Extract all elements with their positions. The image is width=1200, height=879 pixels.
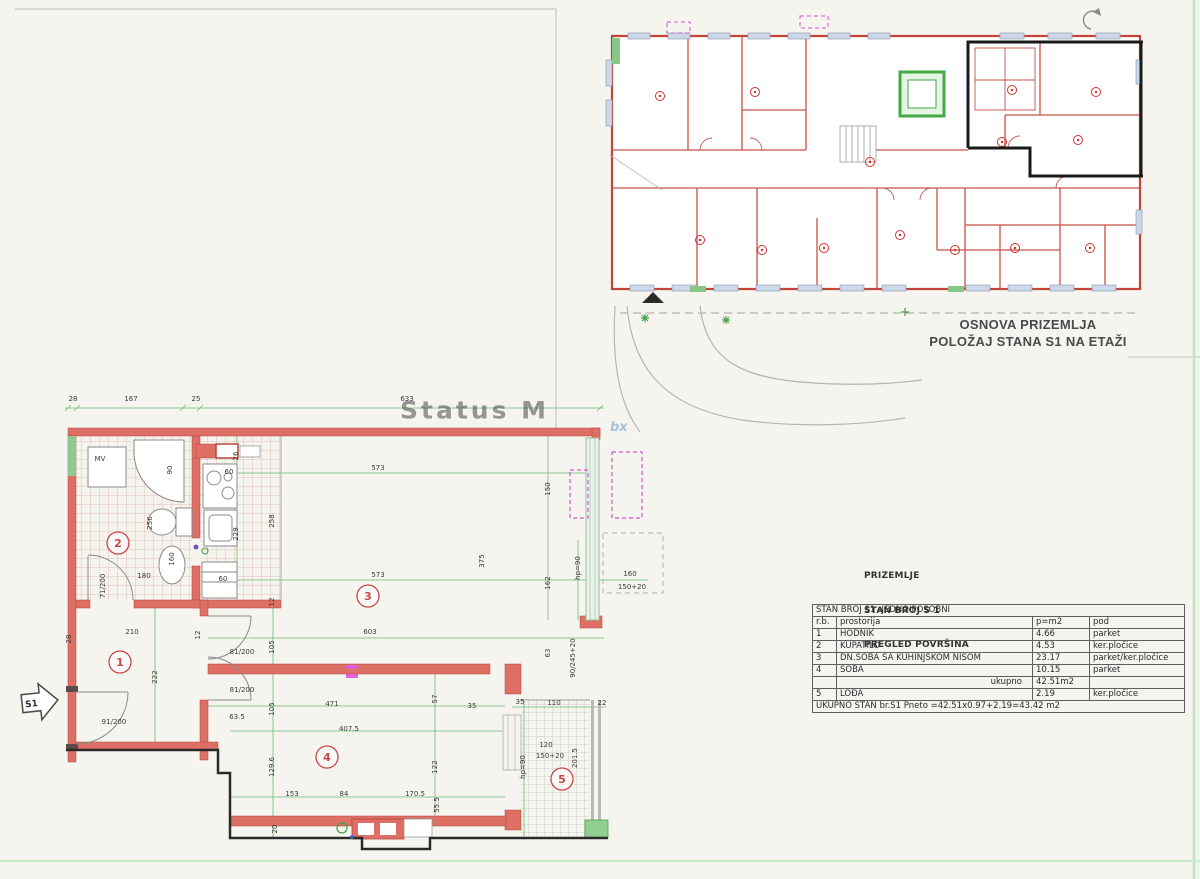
table-row: ukupno42.51m2 bbox=[813, 677, 1185, 689]
table-cell: 2 bbox=[813, 641, 837, 653]
summary-heading-line1: PRIZEMLJE bbox=[864, 571, 969, 583]
dimension-label: 60 bbox=[225, 468, 234, 476]
room-number: 1 bbox=[116, 656, 124, 669]
dimension-label: hp=90 bbox=[519, 755, 527, 779]
dimension-label: 91/200 bbox=[102, 718, 127, 726]
dimension-label: 153 bbox=[285, 790, 298, 798]
dimension-label: 28 bbox=[65, 635, 73, 644]
dimension-label: 129.6 bbox=[268, 756, 276, 777]
entrance-label: S1 bbox=[25, 699, 39, 710]
dimension-label: 256 bbox=[146, 516, 154, 530]
washing-machine bbox=[88, 447, 126, 487]
dimension-label: 573 bbox=[371, 464, 384, 472]
dimension-label: 150+20 bbox=[536, 752, 564, 760]
table-row: STAN BROJ S1 -JEDNOIPOSOBNI bbox=[813, 605, 1185, 617]
table-cell: UKUPNO STAN br.S1 Pneto =42.51x0.97+2.19… bbox=[813, 701, 1185, 713]
table-cell: 3 bbox=[813, 653, 837, 665]
dimension-label: 229 bbox=[232, 527, 240, 540]
dimension-label: 407.5 bbox=[339, 725, 359, 733]
table-cell: ker.pločice bbox=[1090, 689, 1185, 701]
dimension-label: 162 bbox=[544, 576, 552, 589]
dimension-label: 573 bbox=[371, 571, 384, 579]
table-cell: ker.pločice bbox=[1090, 641, 1185, 653]
table-cell: STAN BROJ S1 -JEDNOIPOSOBNI bbox=[813, 605, 1185, 617]
dimension-label: 25 bbox=[192, 395, 201, 403]
table-cell: HODNIK bbox=[837, 629, 1033, 641]
table-cell: 5 bbox=[813, 689, 837, 701]
table-cell: DN.SOBA SA KUHINJSKOM NIŠOM bbox=[837, 653, 1033, 665]
overview-title-line1: OSNOVA PRIZEMLJA bbox=[897, 316, 1159, 333]
table-cell bbox=[813, 677, 837, 689]
room-number: 5 bbox=[558, 773, 566, 786]
room-number: 2 bbox=[114, 537, 122, 550]
room-number: 4 bbox=[323, 751, 331, 764]
table-cell: 10.15 bbox=[1033, 665, 1090, 677]
dimension-label: 120 bbox=[539, 741, 552, 749]
dimension-label: 28 bbox=[69, 395, 78, 403]
dimension-label: 81/200 bbox=[230, 686, 255, 694]
overview-title: OSNOVA PRIZEMLJA POLOŽAJ STANA S1 NA ETA… bbox=[897, 316, 1159, 350]
table-cell: 1 bbox=[813, 629, 837, 641]
dimension-label: 55.5 bbox=[433, 797, 441, 813]
dimension-label: 84 bbox=[340, 790, 349, 798]
table-cell: LOĐA bbox=[837, 689, 1033, 701]
dimension-label: hp=90 bbox=[574, 556, 582, 580]
dimension-label: 375 bbox=[478, 554, 486, 567]
dimension-label: 170.5 bbox=[405, 790, 425, 798]
room-number: 3 bbox=[364, 590, 372, 603]
dimension-label: 60 bbox=[219, 575, 228, 583]
dimension-label: 122 bbox=[431, 760, 439, 773]
table-cell bbox=[1090, 677, 1185, 689]
dimension-label: 35 bbox=[516, 698, 525, 706]
dimension-label: 90/245+20 bbox=[569, 638, 577, 677]
table-cell: ukupno bbox=[837, 677, 1033, 689]
dimension-label: 105 bbox=[268, 640, 276, 653]
dimension-label: 105 bbox=[268, 702, 276, 715]
north-arrow-icon bbox=[1084, 8, 1101, 29]
dimension-label: 150 bbox=[544, 482, 552, 495]
dimension-label: 81/200 bbox=[230, 648, 255, 656]
table-cell: r.b. bbox=[813, 617, 837, 629]
table-cell: pod bbox=[1090, 617, 1185, 629]
table-cell: parket/ker.pločice bbox=[1090, 653, 1185, 665]
table-cell: SOBA bbox=[837, 665, 1033, 677]
table-cell: prostorija bbox=[837, 617, 1033, 629]
dimension-label: 603 bbox=[363, 628, 376, 636]
table-row: 4SOBA10.15parket bbox=[813, 665, 1185, 677]
watermark: Status M bbox=[400, 397, 549, 425]
dimension-label: 180 bbox=[137, 572, 150, 580]
dimension-label: 57 bbox=[431, 695, 439, 704]
table-row: 5LOĐA2.19ker.pločice bbox=[813, 689, 1185, 701]
floorplan-sheet: S1 12345 2816725633573150262292583755731… bbox=[0, 0, 1200, 879]
entrance-marker-triangle bbox=[642, 292, 664, 303]
tree-symbols bbox=[641, 308, 909, 324]
dimension-label: 258 bbox=[268, 514, 276, 527]
table-cell: 4 bbox=[813, 665, 837, 677]
dimension-label: 22 bbox=[598, 699, 607, 707]
table-cell: parket bbox=[1090, 629, 1185, 641]
table-cell: 2.19 bbox=[1033, 689, 1090, 701]
table-cell: p=m2 bbox=[1033, 617, 1090, 629]
dimension-label: 71/200 bbox=[99, 574, 107, 599]
dimension-label: 160 bbox=[168, 552, 176, 565]
table-row: r.b.prostorijap=m2pod bbox=[813, 617, 1185, 629]
stairs bbox=[840, 126, 876, 162]
table-cell: parket bbox=[1090, 665, 1185, 677]
dimension-label: 63 bbox=[544, 649, 552, 658]
dimension-label: 12 bbox=[194, 631, 202, 640]
dimension-label: 26 bbox=[232, 451, 240, 460]
dimension-label: 12 bbox=[268, 598, 276, 607]
dimension-label: 222 bbox=[151, 670, 159, 683]
dimension-label: 20 bbox=[271, 825, 279, 834]
table-cell: 4.53 bbox=[1033, 641, 1090, 653]
dimension-label: 471 bbox=[325, 700, 338, 708]
table-cell: 23.17 bbox=[1033, 653, 1090, 665]
dimension-label: 63.5 bbox=[229, 713, 245, 721]
drawing: S1 12345 2816725633573150262292583755731… bbox=[0, 0, 1200, 879]
table-cell: 42.51m2 bbox=[1033, 677, 1090, 689]
building-overview bbox=[606, 16, 1143, 292]
dimension-label: MV bbox=[95, 455, 106, 463]
dimension-label: 110 bbox=[547, 699, 560, 707]
entrance-arrow: S1 bbox=[20, 682, 60, 722]
dimension-label: 150+20 bbox=[618, 583, 646, 591]
dimension-label: 201.5 bbox=[571, 748, 579, 768]
dimension-label: 90 bbox=[166, 466, 174, 475]
table-row: UKUPNO STAN br.S1 Pneto =42.51x0.97+2.19… bbox=[813, 701, 1185, 713]
dimension-label: 35 bbox=[468, 702, 477, 710]
table-row: 2KUPATILO4.53ker.pločice bbox=[813, 641, 1185, 653]
overview-title-line2: POLOŽAJ STANA S1 NA ETAŽI bbox=[897, 333, 1159, 350]
toilet-tank bbox=[176, 508, 192, 536]
table-row: 1HODNIK4.66parket bbox=[813, 629, 1185, 641]
dimension-label: 210 bbox=[125, 628, 138, 636]
dimension-label: 167 bbox=[124, 395, 137, 403]
table-row: 3DN.SOBA SA KUHINJSKOM NIŠOM23.17parket/… bbox=[813, 653, 1185, 665]
area-table: STAN BROJ S1 -JEDNOIPOSOBNIr.b.prostorij… bbox=[812, 604, 1185, 713]
watermark-bx: bx bbox=[610, 420, 628, 435]
dimension-label: 160 bbox=[623, 570, 636, 578]
table-cell: 4.66 bbox=[1033, 629, 1090, 641]
table-cell: KUPATILO bbox=[837, 641, 1033, 653]
area-table-body: STAN BROJ S1 -JEDNOIPOSOBNIr.b.prostorij… bbox=[813, 605, 1185, 713]
